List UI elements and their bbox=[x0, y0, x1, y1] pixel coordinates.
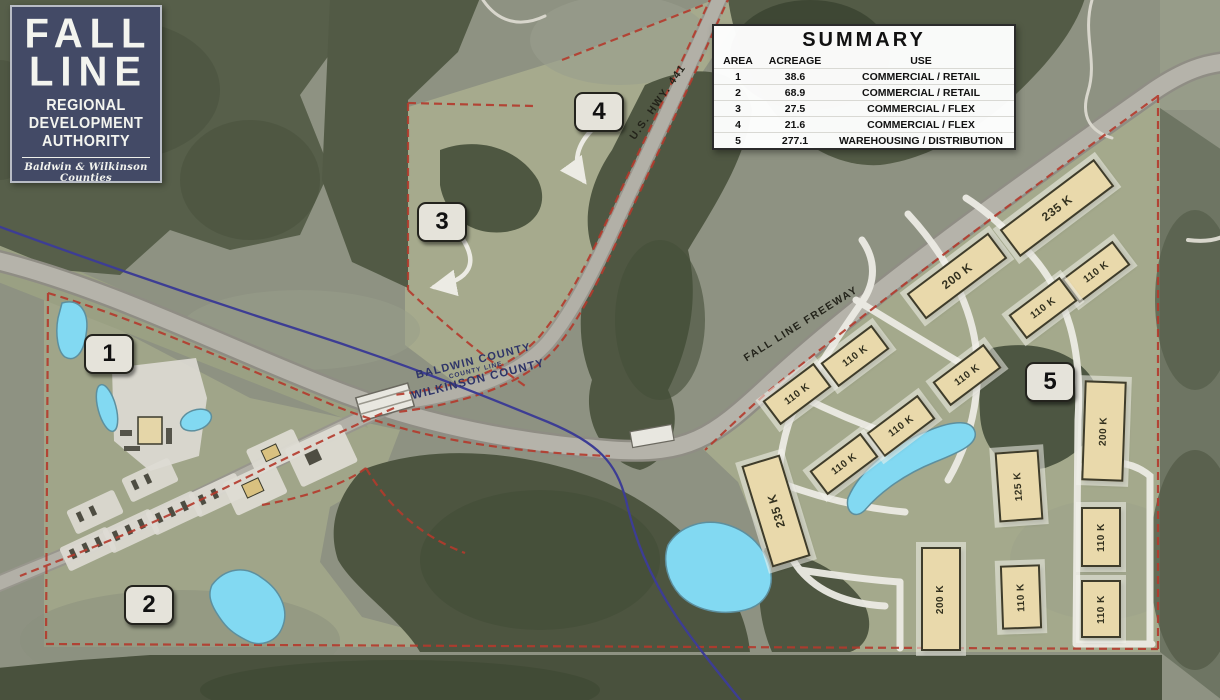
fall-line-authority-logo: FALL LINE REGIONAL DEVELOPMENT AUTHORITY… bbox=[10, 5, 162, 183]
building-label: 200 K bbox=[1098, 416, 1110, 446]
warehouse-building: 200 K bbox=[921, 547, 961, 651]
logo-divider bbox=[22, 157, 150, 158]
cell-use: COMMERCIAL / FLEX bbox=[828, 101, 1014, 117]
area-badge-2: 2 bbox=[124, 585, 174, 625]
warehouse-building: 110 K bbox=[1000, 564, 1042, 629]
cell-use: COMMERCIAL / FLEX bbox=[828, 117, 1014, 133]
building-label: 110 K bbox=[1095, 523, 1106, 552]
area-number: 1 bbox=[102, 340, 115, 368]
table-row: 421.6COMMERCIAL / FLEX bbox=[714, 117, 1014, 133]
cell-area: 4 bbox=[714, 117, 762, 133]
area-number: 5 bbox=[1043, 368, 1056, 396]
building-label: 110 K bbox=[1028, 295, 1057, 321]
column-header-acreage: ACREAGE bbox=[762, 53, 828, 69]
area-badge-1: 1 bbox=[84, 334, 134, 374]
cell-area: 1 bbox=[714, 69, 762, 85]
table-row: 138.6COMMERCIAL / RETAIL bbox=[714, 69, 1014, 85]
cell-use: COMMERCIAL / RETAIL bbox=[828, 85, 1014, 101]
warehouse-building: 125 K bbox=[995, 450, 1044, 523]
table-row: 5277.1WAREHOUSING / DISTRIBUTION bbox=[714, 133, 1014, 149]
building-label: 235 K bbox=[1039, 192, 1075, 224]
building-label: 110 K bbox=[1015, 582, 1027, 611]
area-badge-4: 4 bbox=[574, 92, 624, 132]
cell-area: 3 bbox=[714, 101, 762, 117]
building-label: 110 K bbox=[886, 413, 915, 439]
cell-acreage: 68.9 bbox=[762, 85, 828, 101]
area-number: 3 bbox=[435, 208, 448, 236]
warehouse-building: 110 K bbox=[1081, 507, 1121, 567]
logo-title-line2: LINE bbox=[17, 52, 160, 92]
logo-org-line3: AUTHORITY bbox=[19, 133, 152, 151]
building-label: 110 K bbox=[1095, 595, 1106, 624]
column-header-area: AREA bbox=[714, 53, 762, 69]
cell-acreage: 277.1 bbox=[762, 133, 828, 149]
area-number: 4 bbox=[592, 98, 605, 126]
area-number: 2 bbox=[142, 591, 155, 619]
warehouse-building: 110 K bbox=[1081, 580, 1121, 638]
table-row: 327.5COMMERCIAL / FLEX bbox=[714, 101, 1014, 117]
site-plan-map: 235 K 200 K 110 K 110 K 110 K 110 K 110 … bbox=[0, 0, 1220, 700]
building-label: 200 K bbox=[936, 584, 947, 613]
logo-org-line2: DEVELOPMENT bbox=[19, 115, 152, 133]
building-label: 110 K bbox=[782, 381, 811, 407]
building-label: 125 K bbox=[1012, 471, 1025, 501]
summary-table-panel: SUMMARY AREA ACREAGE USE 138.6COMMERCIAL… bbox=[712, 24, 1016, 150]
cell-area: 2 bbox=[714, 85, 762, 101]
building-label: 110 K bbox=[952, 362, 981, 388]
area-badge-5: 5 bbox=[1025, 362, 1075, 402]
building-label: 110 K bbox=[829, 451, 858, 477]
column-header-use: USE bbox=[828, 53, 1014, 69]
building-label: 235 K bbox=[764, 492, 787, 529]
warehouse-building: 200 K bbox=[1081, 380, 1126, 481]
logo-tagline: Baldwin & Wilkinson Counties bbox=[12, 162, 160, 184]
cell-use: COMMERCIAL / RETAIL bbox=[828, 69, 1014, 85]
summary-title: SUMMARY bbox=[714, 26, 1014, 53]
cell-area: 5 bbox=[714, 133, 762, 149]
cell-acreage: 27.5 bbox=[762, 101, 828, 117]
cell-acreage: 21.6 bbox=[762, 117, 828, 133]
summary-table: AREA ACREAGE USE 138.6COMMERCIAL / RETAI… bbox=[714, 53, 1014, 148]
building-label: 110 K bbox=[840, 343, 869, 369]
building-label: 110 K bbox=[1081, 259, 1110, 285]
area-badge-3: 3 bbox=[417, 202, 467, 242]
cell-acreage: 38.6 bbox=[762, 69, 828, 85]
cell-use: WAREHOUSING / DISTRIBUTION bbox=[828, 133, 1014, 149]
summary-header-row: AREA ACREAGE USE bbox=[714, 53, 1014, 69]
table-row: 268.9COMMERCIAL / RETAIL bbox=[714, 85, 1014, 101]
logo-org-line1: REGIONAL bbox=[19, 97, 152, 115]
